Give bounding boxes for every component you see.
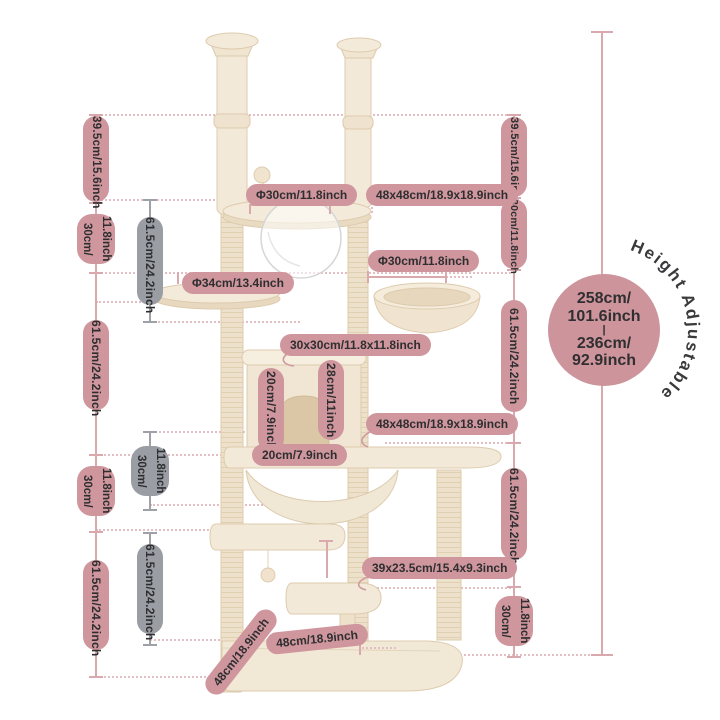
left-pole-collar (214, 114, 250, 128)
tick-mark (591, 31, 613, 33)
label-line: 30cm/ (77, 466, 96, 516)
pompom-toy (254, 167, 270, 183)
guide-line (362, 647, 396, 649)
left-pole-plush (217, 44, 247, 214)
lower-platform (210, 524, 345, 550)
hanging-ball-toy (261, 568, 275, 582)
tick-mark (507, 586, 521, 588)
bracket-end (249, 204, 251, 214)
step-height-tick (319, 540, 333, 542)
left-segment-1-label: 39.5cm/15.6inch (83, 116, 109, 202)
svg-text:Height Adjustable: Height Adjustable (628, 236, 703, 405)
condo-size-label: 30x30cm/11.8x11.8inch (280, 334, 431, 356)
basket-diameter-label: Φ30cm/11.8inch (368, 250, 479, 272)
tick-mark (143, 199, 157, 201)
tick-mark (143, 321, 157, 323)
tick-mark (143, 509, 157, 511)
tick-mark (143, 644, 157, 646)
step-height-line (326, 541, 328, 578)
left-segment-3-label: 61.5cm/24.2inch (83, 320, 109, 410)
tick-mark (591, 654, 613, 656)
front-support-post (437, 470, 461, 640)
label-line: 11.8inch (150, 446, 169, 496)
left-ceiling-cap (206, 33, 258, 49)
top-platform-diameter-label: Φ30cm/11.8inch (246, 184, 357, 206)
tick-mark (143, 532, 157, 534)
step-size-label: 39x23.5cm/15.4x9.3inch (362, 557, 517, 579)
tick-mark (89, 531, 103, 533)
right-segment-5-label: 30cm/ 11.8inch (495, 596, 533, 646)
bracket-end (445, 271, 447, 283)
middle-segment-3-label: 61.5cm/24.2inch (137, 544, 163, 634)
right-pole-collar (343, 116, 373, 129)
tick-mark (143, 431, 157, 433)
basket-inner (384, 288, 470, 306)
height-adjustable-label: Height Adjustable (628, 236, 703, 405)
condo-inner-height-label: 20cm/7.9inch (258, 368, 284, 452)
right-ceiling-cap (337, 38, 381, 52)
round-platform-diameter-label: Φ34cm/13.4inch (182, 272, 294, 294)
label-line: 30cm/ (131, 446, 150, 496)
middle-segment-2-label: 30cm/ 11.8inch (131, 446, 169, 496)
top-board-size-label: 48x48cm/18.9x18.9inch (366, 184, 518, 206)
hammock (246, 470, 398, 524)
round-platform-bracket-end (177, 272, 179, 284)
right-segment-4-label: 61.5cm/24.2inch (501, 468, 527, 560)
board-depth-label: 20cm/7.9inch (252, 444, 347, 466)
middle-segment-1-label: 61.5cm/24.2inch (137, 217, 163, 305)
tick-mark (507, 656, 521, 658)
label-line: 11.8inch (96, 466, 115, 516)
label-line: 30cm/ (77, 214, 96, 264)
tick-mark (89, 272, 103, 274)
label-line: 11.8inch (96, 214, 115, 264)
tick-mark (89, 676, 103, 678)
condo-clearance-label: 28cm/11inch (318, 360, 344, 440)
left-segment-2-label: 30cm/ 11.8inch (77, 214, 115, 264)
left-segment-5-label: 61.5cm/24.2inch (83, 560, 109, 650)
height-adjustable-arc-text: Height Adjustable (496, 222, 720, 446)
tick-mark (89, 454, 103, 456)
tick-mark (507, 114, 521, 116)
label-line: 11.8inch (514, 596, 533, 646)
cat-tree-dimension-diagram: 39.5cm/15.6inch 30cm/ 11.8inch 61.5cm/24… (0, 0, 720, 720)
basket-bracket (368, 276, 446, 278)
left-segment-4-label: 30cm/ 11.8inch (77, 466, 115, 516)
bracket-end (367, 271, 369, 283)
step-board (286, 583, 381, 614)
label-line: 30cm/ (495, 596, 514, 646)
